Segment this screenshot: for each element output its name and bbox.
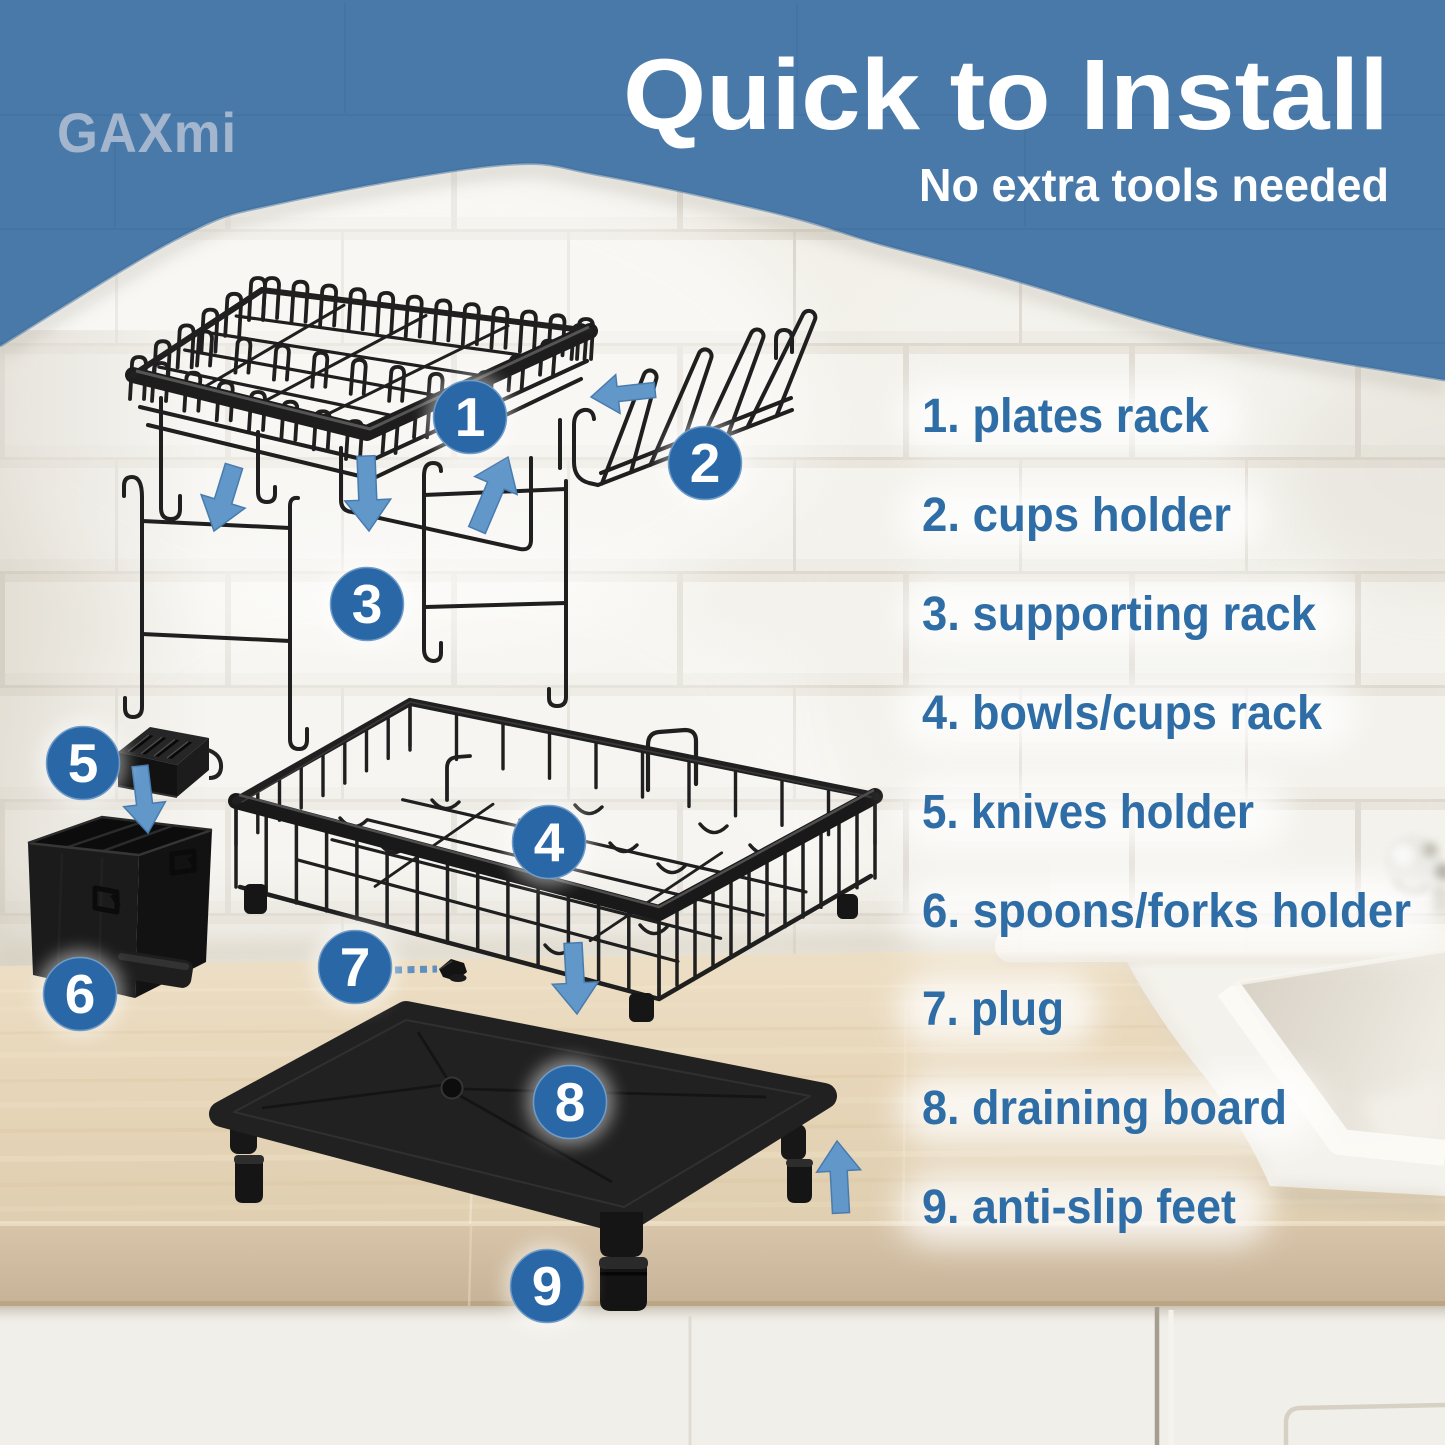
svg-text:2. cups holder: 2. cups holder bbox=[922, 489, 1231, 542]
svg-text:8: 8 bbox=[555, 1071, 586, 1133]
svg-text:3: 3 bbox=[352, 573, 383, 635]
svg-text:5. knives holder: 5. knives holder bbox=[922, 786, 1254, 839]
svg-text:4: 4 bbox=[534, 811, 565, 873]
svg-text:8. draining board: 8. draining board bbox=[922, 1082, 1287, 1135]
svg-text:9. anti-slip feet: 9. anti-slip feet bbox=[922, 1181, 1236, 1234]
svg-text:Quick to Install: Quick to Install bbox=[623, 39, 1389, 151]
svg-text:1: 1 bbox=[455, 386, 486, 448]
svg-text:7: 7 bbox=[340, 936, 371, 998]
svg-text:No extra tools needed: No extra tools needed bbox=[919, 159, 1389, 211]
svg-text:6: 6 bbox=[65, 963, 96, 1025]
svg-text:GAXmi: GAXmi bbox=[57, 101, 237, 164]
svg-text:6. spoons/forks holder: 6. spoons/forks holder bbox=[922, 885, 1411, 938]
svg-text:2: 2 bbox=[690, 432, 721, 494]
svg-text:4. bowls/cups rack: 4. bowls/cups rack bbox=[922, 687, 1322, 740]
svg-text:1. plates rack: 1. plates rack bbox=[922, 390, 1209, 443]
svg-text:3. supporting rack: 3. supporting rack bbox=[922, 588, 1316, 641]
svg-text:9: 9 bbox=[532, 1255, 563, 1317]
svg-text:7. plug: 7. plug bbox=[922, 983, 1064, 1036]
svg-text:5: 5 bbox=[68, 732, 99, 794]
